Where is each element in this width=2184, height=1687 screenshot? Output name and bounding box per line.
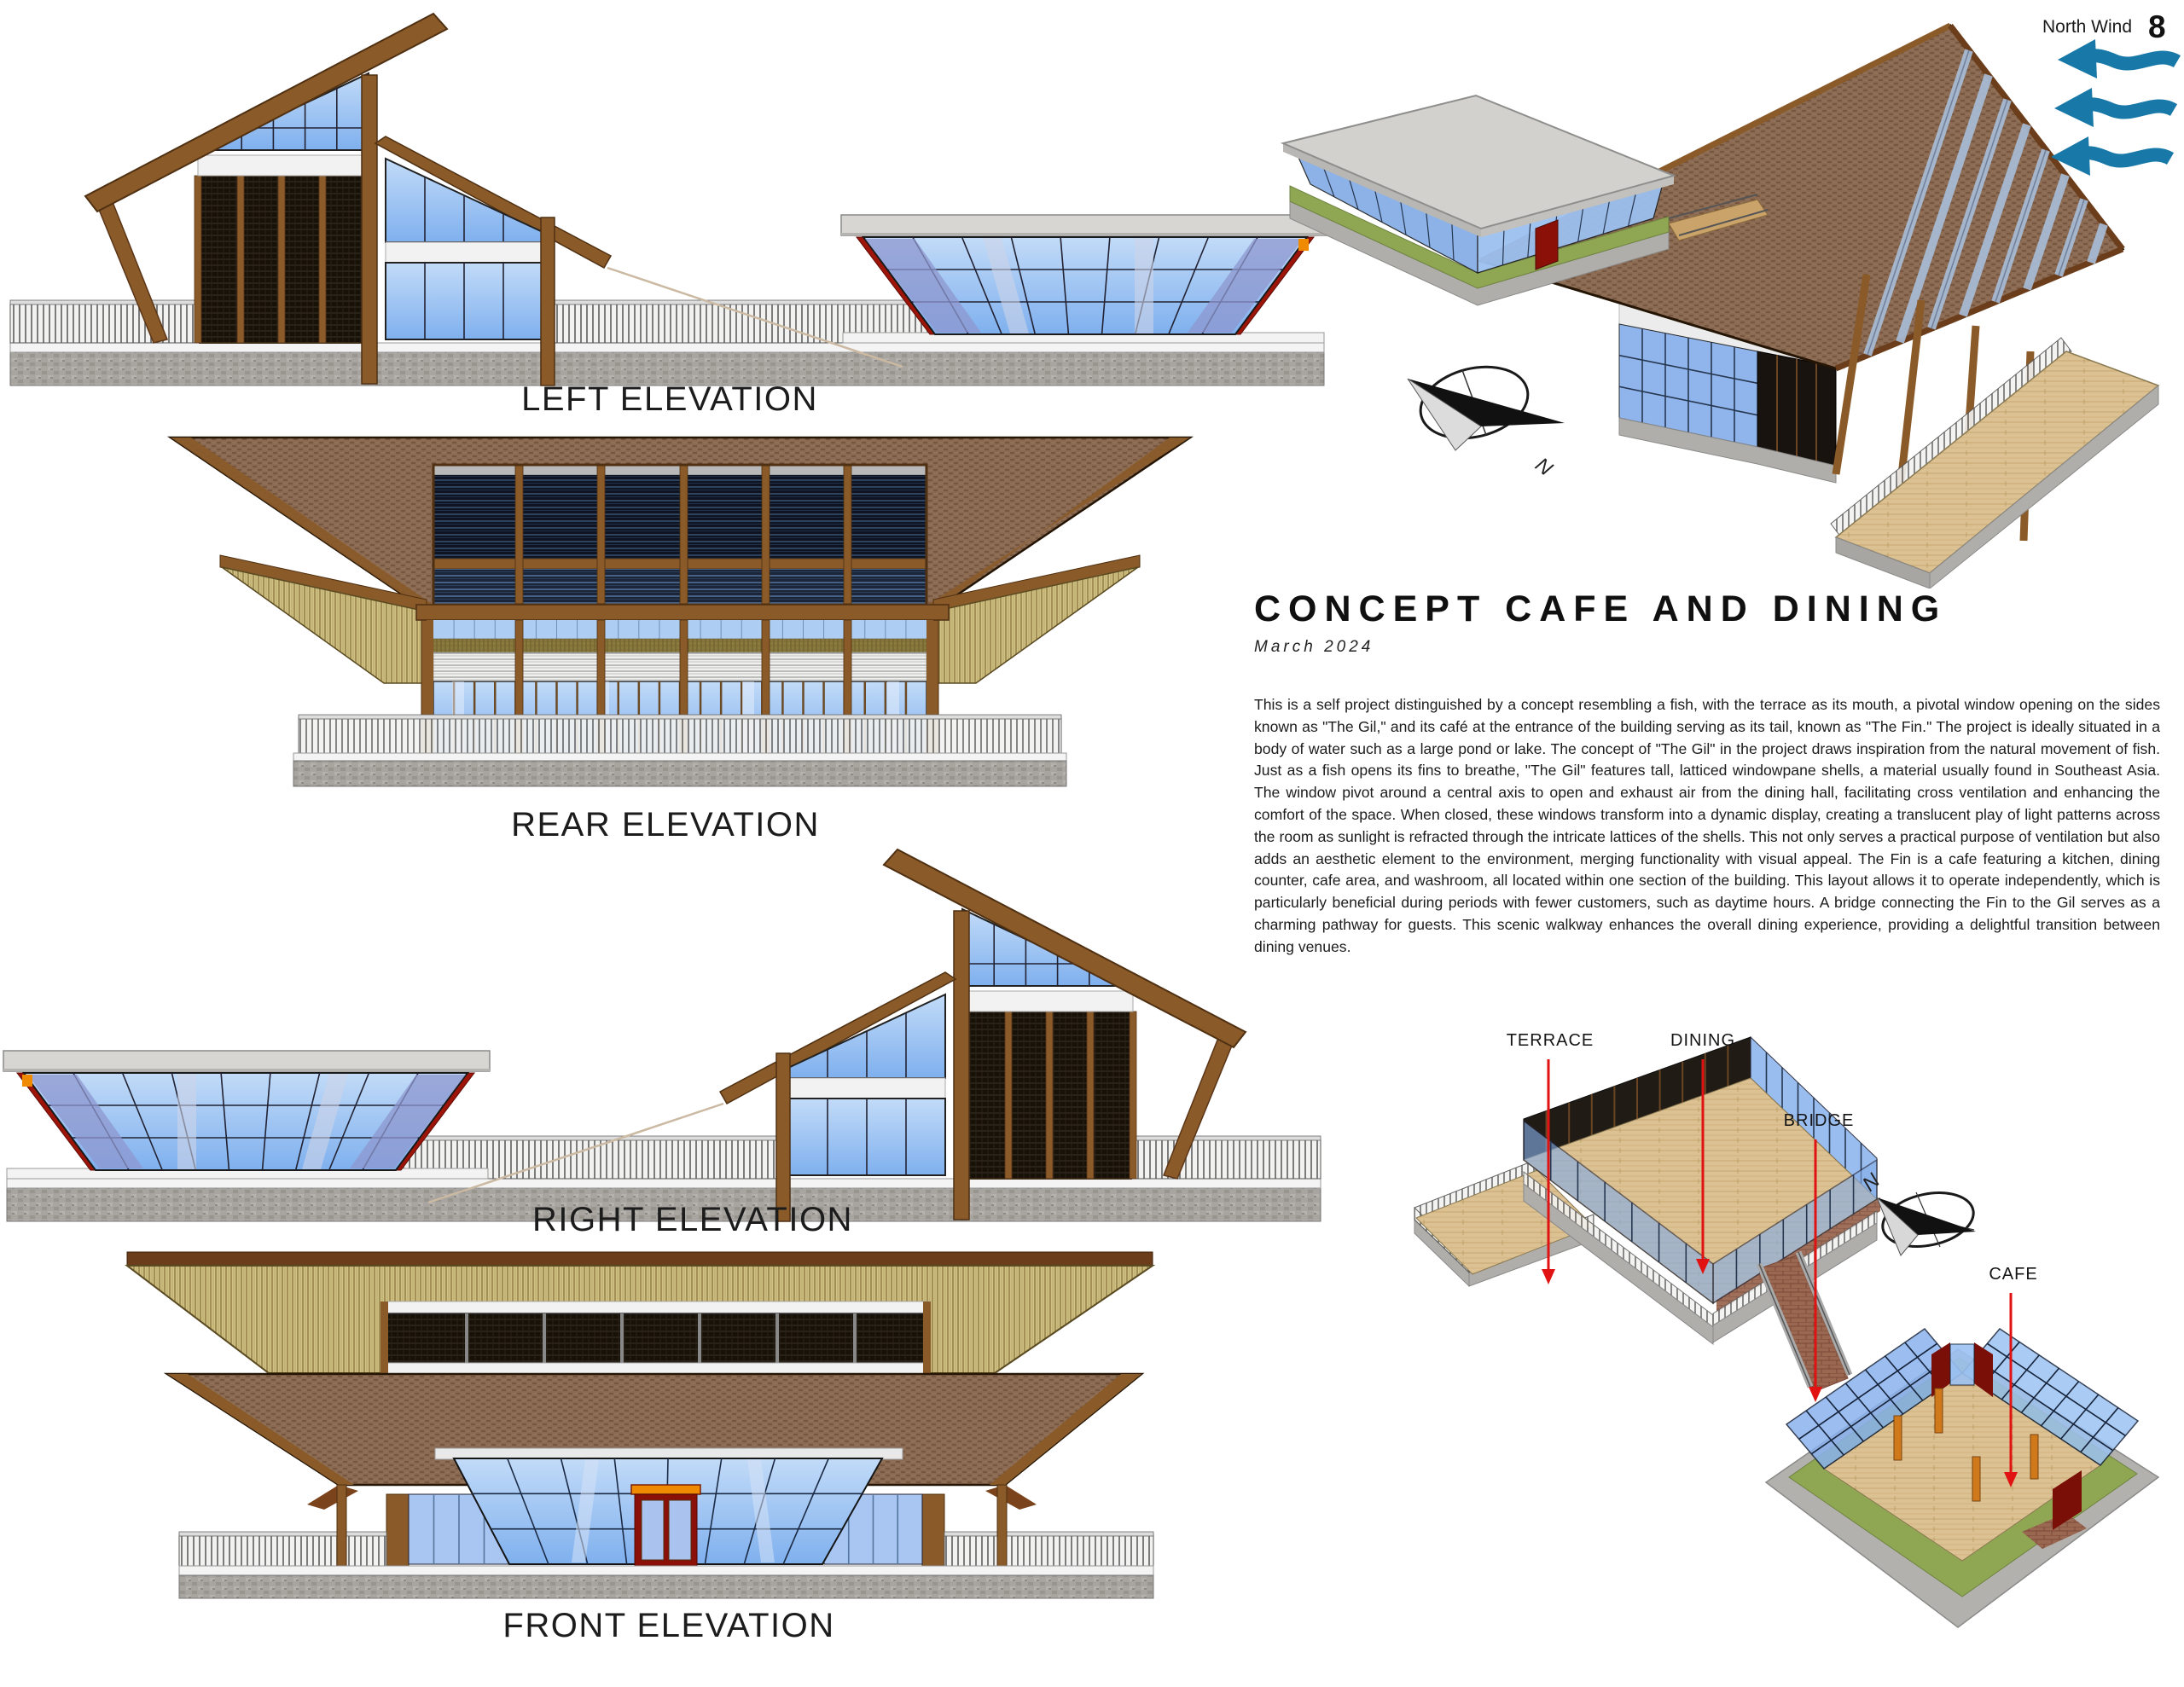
railing [944, 1534, 1153, 1566]
red-door [1536, 220, 1558, 270]
stone-base [293, 761, 1066, 786]
page-title: CONCEPT CAFE AND DINING [1254, 588, 2160, 630]
concept-paragraph: This is a self project distinguished by … [1254, 694, 2160, 959]
right-elevation-figure: RIGHT ELEVATION [0, 836, 1331, 1262]
page-number: 8 [2148, 9, 2166, 44]
lattice-band [387, 1313, 930, 1363]
compass-icon: N [1408, 357, 1565, 481]
north-wind-icon [2051, 39, 2177, 176]
left-elevation-figure: LEFT ELEVATION [0, 0, 1331, 426]
aerial-isometric-view: N North Wind 8 [1280, 0, 2184, 588]
terrace-deck [1836, 351, 2158, 573]
bridge-label: BRIDGE [1784, 1111, 1855, 1130]
left-elevation-label: LEFT ELEVATION [521, 380, 818, 419]
project-date: March 2024 [1254, 638, 2160, 657]
railing [299, 717, 1061, 753]
terrace-label: TERRACE [1507, 1031, 1594, 1050]
plan-isometric-view: N TERRACE DINING BRIDGE CAFE [1365, 1015, 2184, 1687]
bridge-walkway [1759, 1252, 1850, 1392]
rear-elevation-drawing [119, 431, 1246, 849]
dining-label: DINING [1670, 1031, 1735, 1050]
arrow-icon [1542, 1269, 1555, 1284]
front-elevation-label: FRONT ELEVATION [502, 1607, 834, 1645]
lattice-wall [433, 465, 926, 605]
orange-transom [631, 1485, 700, 1494]
presentation-sheet: LEFT ELEVATION REAR ELEVATION RIGHT E [0, 0, 2184, 1687]
rear-elevation-figure: REAR ELEVATION [119, 431, 1246, 849]
railing [10, 304, 200, 343]
railing [179, 1534, 386, 1566]
aerial-isometric-figure: N North Wind 8 [1280, 0, 2184, 588]
right-elevation-drawing [0, 836, 1331, 1262]
right-elevation-label: RIGHT ELEVATION [532, 1201, 853, 1239]
plan-isometric-figure: N TERRACE DINING BRIDGE CAFE [1365, 1015, 2184, 1687]
roof-slab [841, 215, 1327, 235]
compass-north-letter: N [1531, 453, 1557, 480]
arrow-icon [1809, 1387, 1822, 1402]
north-wind-label: North Wind [2042, 17, 2132, 37]
front-elevation-figure: FRONT ELEVATION [102, 1245, 1177, 1687]
left-elevation-drawing [0, 0, 1331, 426]
cafe-label: CAFE [1989, 1265, 2037, 1284]
concept-text-block: CONCEPT CAFE AND DINING March 2024 This … [1254, 588, 2160, 959]
stone-base [179, 1575, 1153, 1598]
